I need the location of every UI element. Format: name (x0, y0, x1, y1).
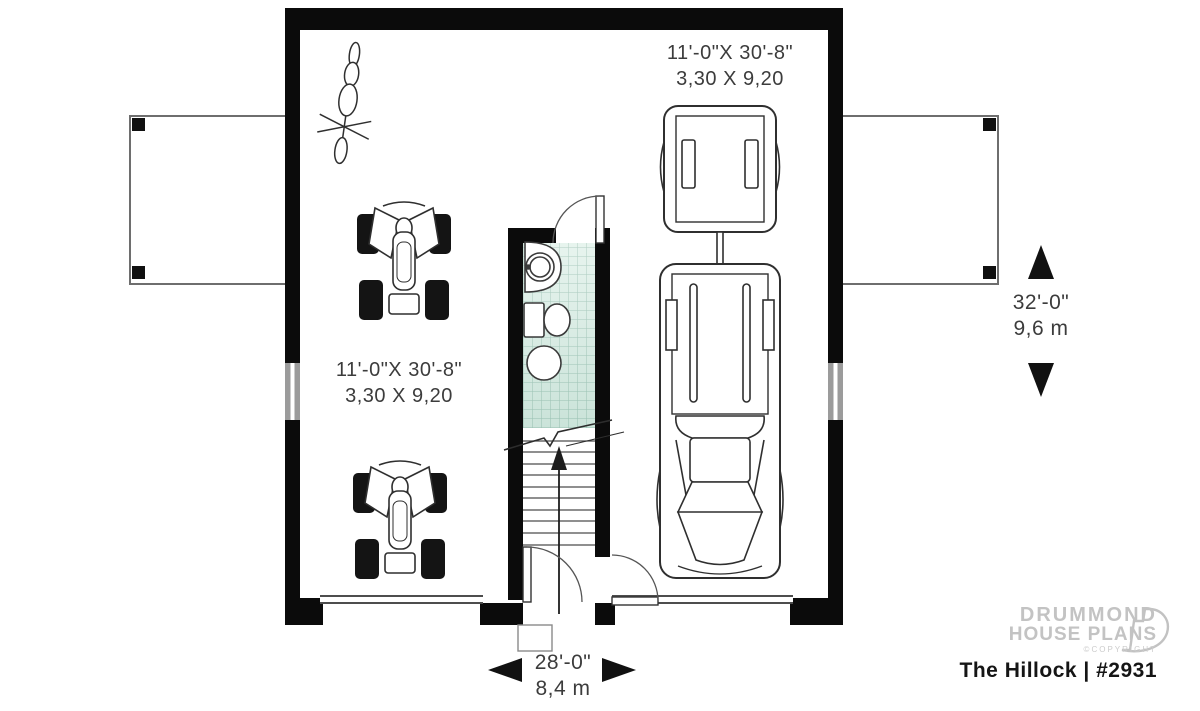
pickup-truck-icon (657, 264, 783, 578)
plan-name: The Hillock | #2931 (960, 659, 1157, 683)
bottom-wall-segment (285, 598, 323, 625)
right-bay-metric: 3,30 X 9,20 (640, 66, 820, 92)
right-window (828, 363, 843, 420)
atv-icon (353, 461, 447, 579)
right-bay-imperial: 11'-0"X 30'-8" (640, 40, 820, 66)
garage-door-left (320, 595, 483, 604)
width-dimension: 28'-0" 8,4 m (517, 650, 609, 702)
atv-icon (357, 202, 451, 320)
bottom-wall-segment (480, 603, 523, 625)
brand-line1: DRUMMOND (1009, 606, 1157, 625)
stair-up-arrow (551, 446, 567, 614)
brand-copyright: ©COPYRIGHT (1009, 644, 1157, 655)
width-imperial: 28'-0" (517, 650, 609, 676)
depth-metric: 9,6 m (993, 316, 1089, 342)
left-wall (285, 8, 300, 625)
dim-arrow-up-icon (1028, 245, 1054, 279)
bottom-wall-segment (595, 603, 615, 625)
porch-post (132, 266, 145, 279)
entry-step (518, 625, 552, 651)
dim-arrow-down-icon (1028, 363, 1054, 397)
right-porch (841, 115, 999, 285)
top-wall (285, 8, 843, 30)
right-bay-label: 11'-0"X 30'-8" 3,30 X 9,20 (640, 40, 820, 92)
entry-door-swing (518, 547, 582, 651)
bathroom-wall-right (595, 228, 610, 557)
brand-line2: HOUSE PLANS (1009, 625, 1157, 644)
depth-dimension: 32'-0" 9,6 m (993, 290, 1089, 342)
bathroom-wall-top (508, 228, 556, 243)
porch-post (983, 118, 996, 131)
left-bay-label: 11'-0"X 30'-8" 3,30 X 9,20 (310, 357, 488, 409)
stair-treads (523, 441, 595, 545)
floor-plan-canvas: 11'-0"X 30'-8" 3,30 X 9,20 11'-0"X 30'-8… (0, 0, 1200, 711)
porch-post (983, 266, 996, 279)
right-wall (828, 8, 843, 625)
motorcycle-icon (313, 39, 381, 167)
dim-arrow-right-icon (602, 658, 636, 682)
bathroom-floor (523, 243, 595, 428)
trailer-icon (661, 106, 780, 268)
porch-post (132, 118, 145, 131)
left-bay-imperial: 11'-0"X 30'-8" (310, 357, 488, 383)
width-metric: 8,4 m (517, 676, 609, 702)
garage-door-right (612, 595, 793, 604)
left-window (285, 363, 300, 420)
bathroom-wall-left (508, 228, 523, 600)
bottom-wall-segment (790, 598, 843, 625)
depth-imperial: 32'-0" (993, 290, 1089, 316)
left-bay-metric: 3,30 X 9,20 (310, 383, 488, 409)
left-porch (129, 115, 291, 285)
brand-block: DRUMMOND HOUSE PLANS ©COPYRIGHT (1009, 606, 1157, 655)
